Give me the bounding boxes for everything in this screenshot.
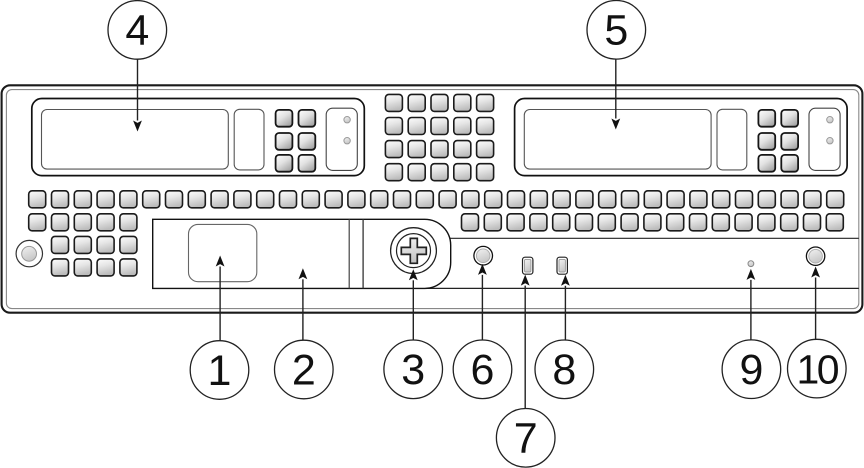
svg-text:3: 3 — [401, 346, 425, 394]
svg-text:6: 6 — [471, 346, 495, 394]
svg-text:10: 10 — [796, 346, 838, 392]
svg-text:5: 5 — [604, 7, 628, 55]
svg-text:8: 8 — [552, 346, 576, 394]
svg-text:4: 4 — [125, 7, 149, 55]
svg-text:1: 1 — [208, 347, 232, 395]
svg-text:9: 9 — [739, 346, 763, 394]
svg-text:2: 2 — [292, 346, 316, 394]
svg-text:7: 7 — [514, 415, 538, 463]
